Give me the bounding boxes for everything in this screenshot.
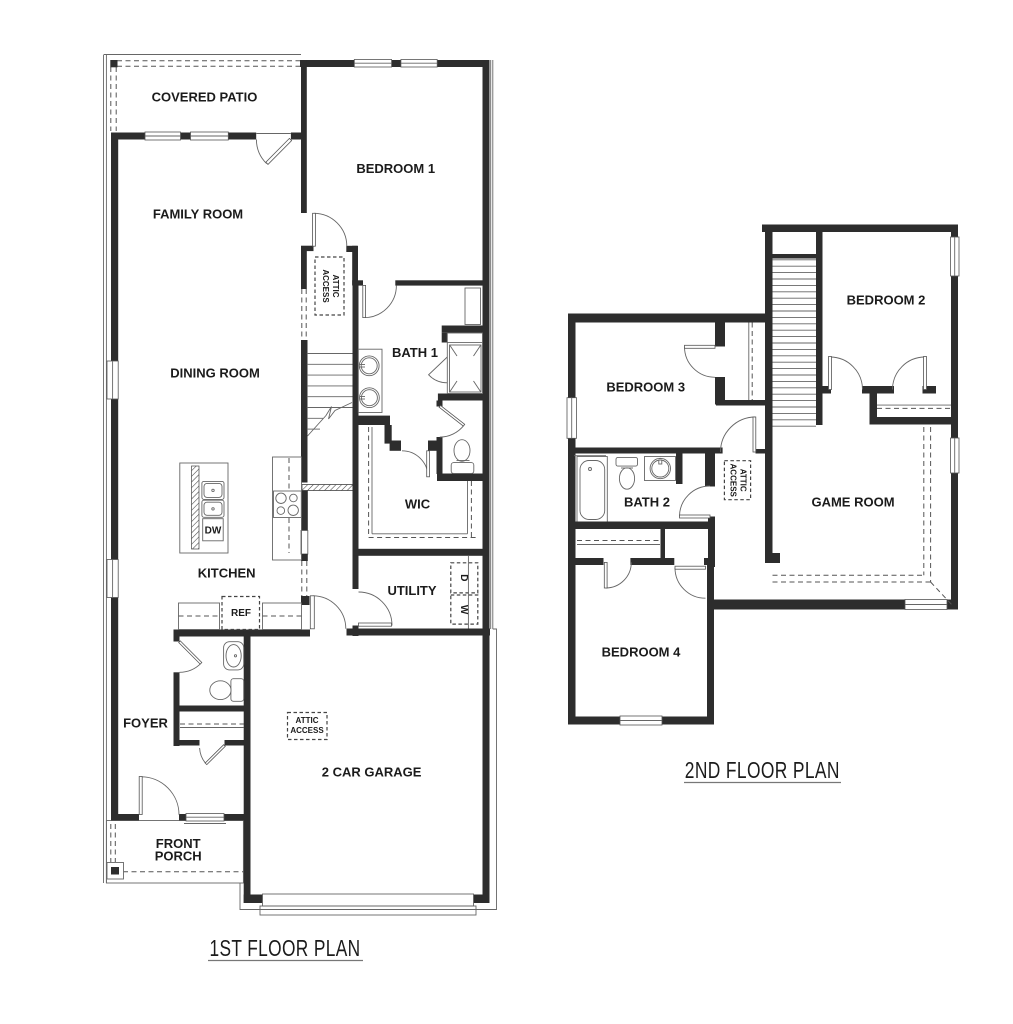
svg-text:ATTIC: ATTIC	[296, 716, 319, 725]
svg-text:2 CAR GARAGE: 2 CAR GARAGE	[322, 765, 422, 780]
svg-text:ATTIC: ATTIC	[331, 275, 340, 298]
svg-text:1ST FLOOR PLAN: 1ST FLOOR PLAN	[210, 935, 361, 961]
svg-text:PORCH: PORCH	[155, 849, 202, 864]
svg-text:ACCESS: ACCESS	[290, 726, 324, 735]
svg-text:ACCESS: ACCESS	[321, 269, 330, 303]
svg-text:FAMILY ROOM: FAMILY ROOM	[153, 207, 243, 222]
svg-text:WIC: WIC	[405, 497, 431, 512]
svg-text:FOYER: FOYER	[123, 716, 168, 731]
svg-text:ATTIC: ATTIC	[739, 469, 748, 492]
svg-text:BATH 2: BATH 2	[624, 495, 670, 510]
svg-text:BEDROOM 1: BEDROOM 1	[356, 161, 435, 176]
svg-text:BEDROOM 4: BEDROOM 4	[602, 645, 682, 660]
svg-text:DW: DW	[205, 526, 222, 537]
svg-text:COVERED PATIO: COVERED PATIO	[152, 90, 258, 105]
svg-text:D: D	[458, 574, 469, 581]
svg-text:ACCESS: ACCESS	[729, 464, 738, 498]
svg-text:W: W	[458, 605, 469, 615]
svg-text:BEDROOM 3: BEDROOM 3	[606, 379, 685, 394]
svg-text:KITCHEN: KITCHEN	[198, 566, 256, 581]
svg-text:REF: REF	[231, 608, 251, 619]
svg-text:2ND FLOOR PLAN: 2ND FLOOR PLAN	[685, 757, 840, 783]
svg-text:DINING ROOM: DINING ROOM	[170, 366, 260, 381]
svg-text:UTILITY: UTILITY	[387, 583, 436, 598]
svg-text:BEDROOM 2: BEDROOM 2	[847, 293, 926, 308]
svg-text:GAME ROOM: GAME ROOM	[811, 495, 894, 510]
svg-text:BATH 1: BATH 1	[392, 345, 438, 360]
